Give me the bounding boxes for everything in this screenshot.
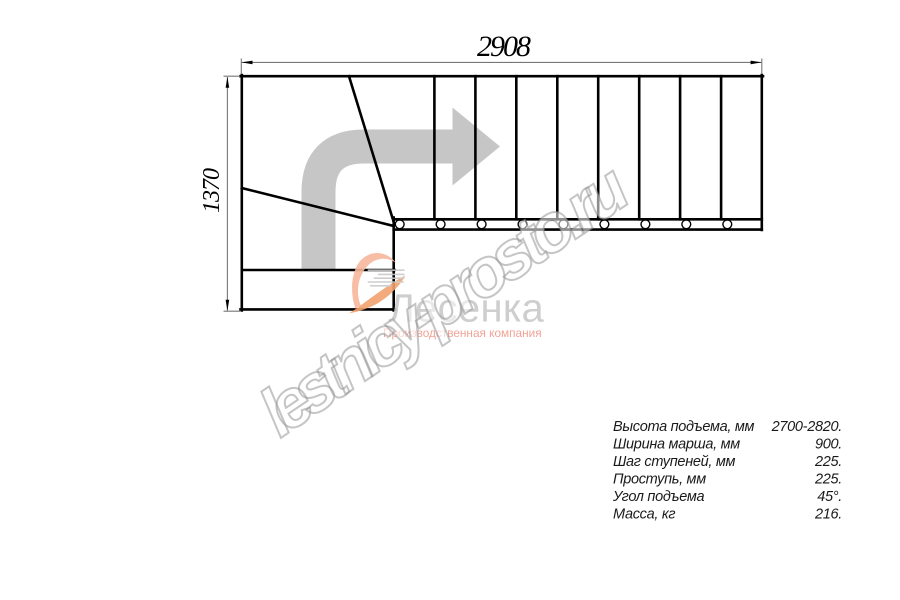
svg-text:2908: 2908 xyxy=(477,30,531,63)
svg-text:Высота подъема, мм: Высота подъема, мм xyxy=(613,419,755,435)
svg-text:216.: 216. xyxy=(814,507,842,523)
svg-text:2700-2820.: 2700-2820. xyxy=(771,419,842,435)
svg-text:Проступь, мм: Проступь, мм xyxy=(613,472,706,488)
svg-text:225.: 225. xyxy=(814,454,842,470)
svg-text:Угол подъема: Угол подъема xyxy=(612,489,704,505)
svg-text:45°.: 45°. xyxy=(817,489,842,505)
svg-text:900.: 900. xyxy=(815,437,842,453)
svg-text:225.: 225. xyxy=(814,472,842,488)
svg-text:Ширина марша, мм: Ширина марша, мм xyxy=(613,437,740,453)
svg-text:Масса, кг: Масса, кг xyxy=(613,507,675,523)
svg-text:Шаг ступеней, мм: Шаг ступеней, мм xyxy=(613,454,735,470)
svg-text:1370: 1370 xyxy=(199,168,225,213)
